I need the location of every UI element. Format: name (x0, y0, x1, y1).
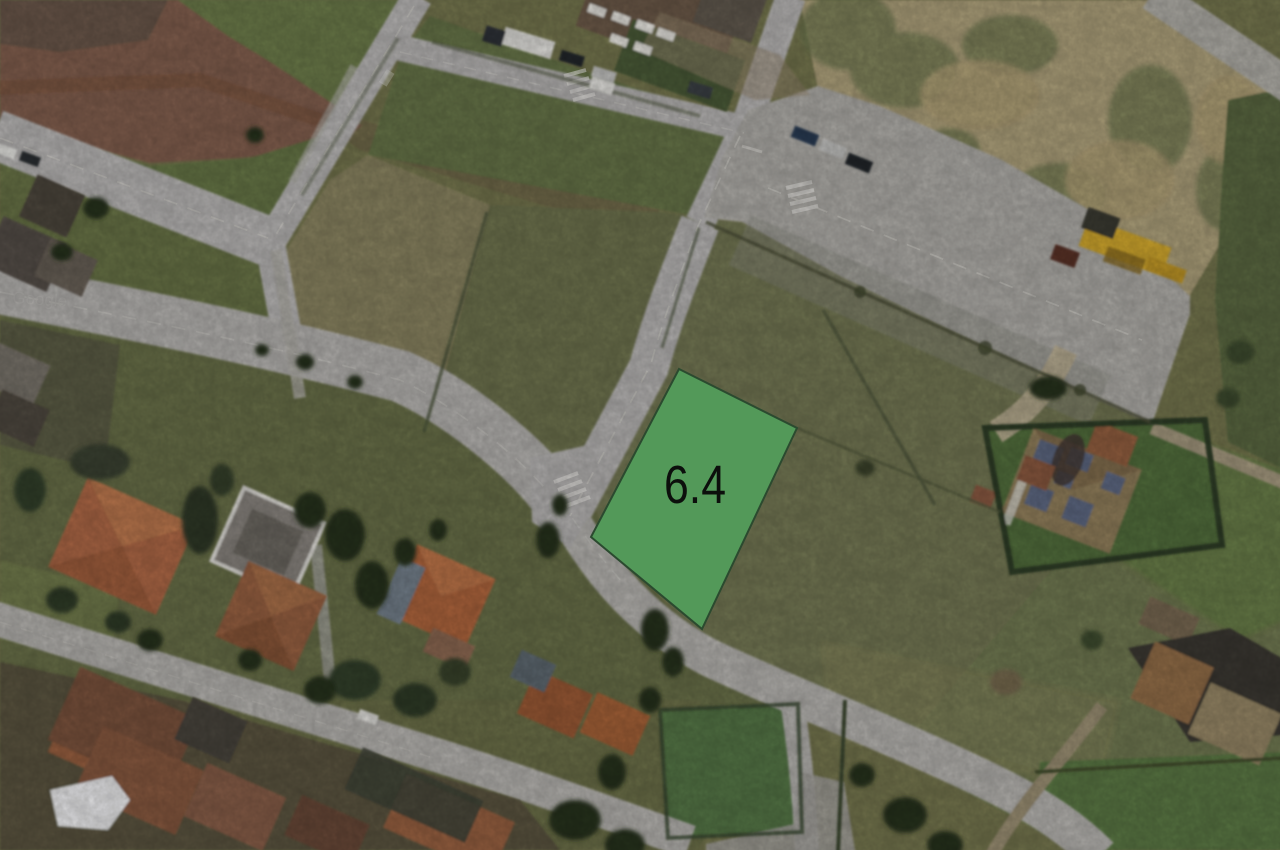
svg-text:6.4: 6.4 (664, 455, 726, 515)
